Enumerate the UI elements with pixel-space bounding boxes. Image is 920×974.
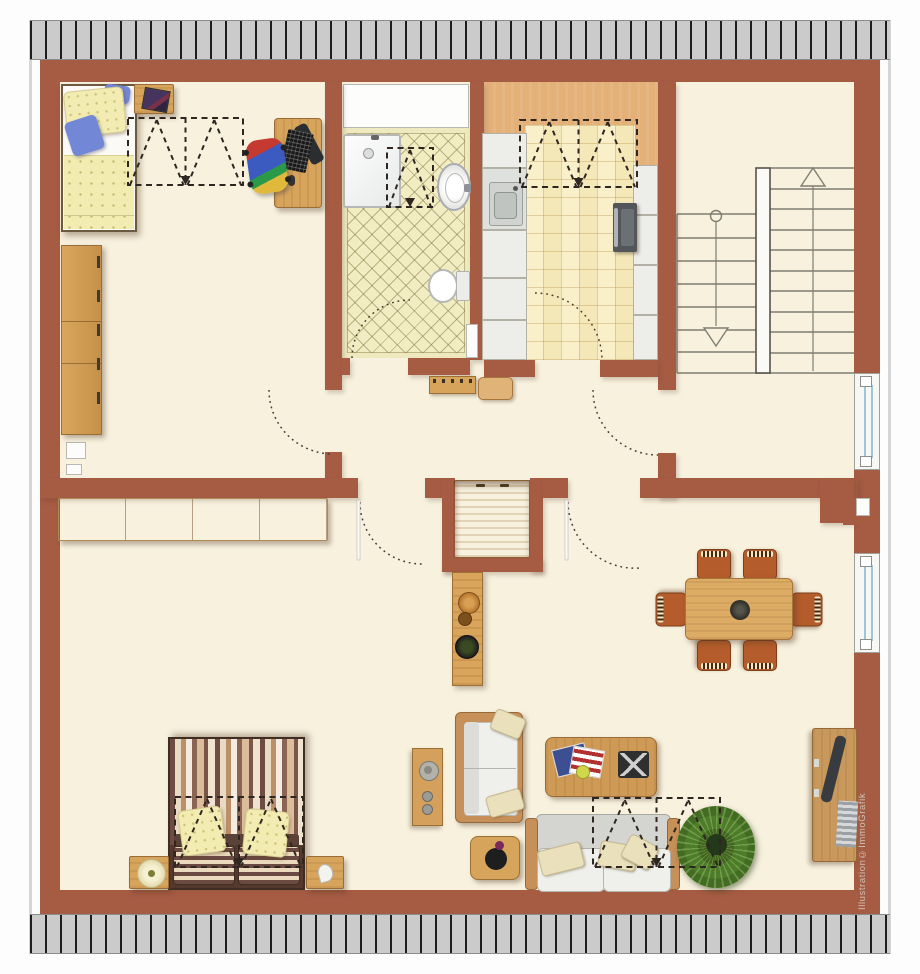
roof-window-marker xyxy=(520,120,637,187)
roof-window-marker xyxy=(128,118,243,185)
door-swing-arc xyxy=(360,502,422,564)
door-swing-arc xyxy=(352,300,410,358)
roof-edge-left xyxy=(29,20,32,954)
door-swing-arc xyxy=(269,390,333,454)
roof-window-marker xyxy=(175,797,303,867)
roof-window-marker xyxy=(387,148,433,207)
door-leaf xyxy=(357,500,360,560)
roof-hatch-top xyxy=(30,20,890,60)
floorplan: Illustration©ImmoGrafik xyxy=(0,0,920,974)
door-swing-arc xyxy=(568,502,640,568)
door-swing-arc xyxy=(535,293,602,360)
plan-symbols xyxy=(0,0,920,974)
roof-hatch-bottom xyxy=(30,914,890,954)
roof-edge-right xyxy=(888,20,891,954)
roof-window-marker xyxy=(593,798,720,867)
watermark: Illustration©ImmoGrafik xyxy=(857,770,868,910)
door-swing-arc xyxy=(593,390,658,455)
door-leaf xyxy=(565,500,568,560)
